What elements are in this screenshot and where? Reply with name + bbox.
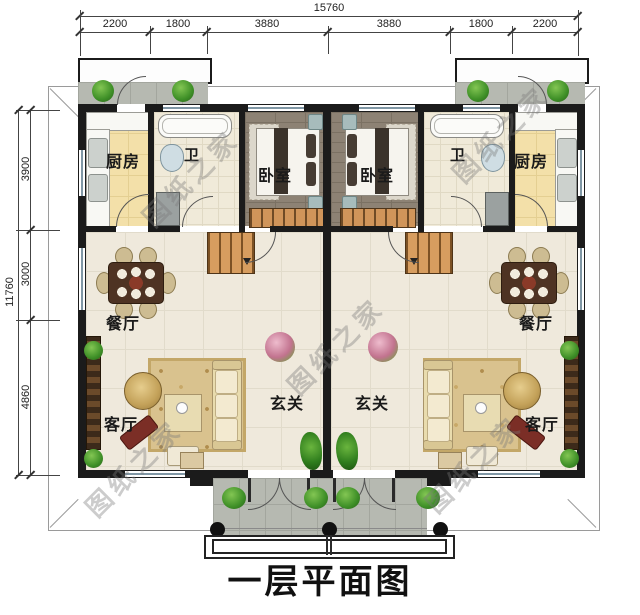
plant bbox=[304, 487, 328, 509]
plant bbox=[560, 449, 579, 468]
dim-ext bbox=[16, 230, 60, 231]
shoe-cabinet bbox=[180, 452, 204, 469]
flower-plant bbox=[368, 332, 398, 362]
steps-divider bbox=[326, 535, 328, 555]
nightstand bbox=[308, 114, 323, 130]
dim-seg: 2200 bbox=[90, 18, 140, 30]
plant bbox=[84, 449, 103, 468]
plant bbox=[300, 432, 322, 470]
room-label-living-left: 客厅 bbox=[104, 411, 138, 435]
sofa-cushion bbox=[215, 418, 238, 442]
dim-line bbox=[80, 16, 578, 17]
dim-seg: 2200 bbox=[520, 18, 570, 30]
plant bbox=[84, 341, 103, 360]
plant bbox=[336, 487, 360, 509]
dim-ext bbox=[80, 10, 81, 56]
nightstand bbox=[342, 114, 357, 130]
wall-segment bbox=[483, 226, 515, 232]
table-dish bbox=[475, 402, 487, 414]
kitchen-stove bbox=[557, 174, 577, 202]
wall-segment bbox=[270, 226, 323, 232]
plant bbox=[222, 487, 246, 509]
flower-plant bbox=[265, 332, 295, 362]
window bbox=[78, 248, 86, 310]
steps-divider bbox=[330, 535, 332, 555]
pillow bbox=[347, 162, 357, 186]
dim-seg: 3000 bbox=[20, 244, 32, 304]
wall-segment bbox=[78, 104, 86, 150]
wall-segment bbox=[540, 470, 585, 478]
plant bbox=[467, 80, 489, 102]
window bbox=[359, 104, 415, 112]
dim-seg: 3900 bbox=[20, 139, 32, 199]
wall-segment bbox=[78, 196, 86, 248]
dim-ext bbox=[16, 475, 60, 476]
wall-segment bbox=[185, 470, 248, 478]
plant bbox=[336, 432, 358, 470]
dim-ext bbox=[16, 320, 60, 321]
sofa-cushion bbox=[427, 394, 450, 418]
floor-plan: 厨房 厨房 卫 卫 卧室 卧室 餐厅 餐厅 客厅 客厅 玄关 玄关 图纸之家 图… bbox=[0, 0, 640, 615]
sofa-cushion bbox=[215, 370, 238, 394]
dining-table bbox=[501, 262, 557, 304]
room-label-foyer-right: 玄关 bbox=[355, 390, 389, 414]
dim-line bbox=[18, 110, 19, 476]
wall-segment bbox=[418, 104, 424, 232]
wall-segment bbox=[304, 104, 359, 112]
kitchen-sink bbox=[88, 138, 108, 168]
sofa-cushion bbox=[215, 394, 238, 418]
plant bbox=[92, 80, 114, 102]
shower bbox=[485, 192, 509, 226]
window bbox=[577, 248, 585, 310]
wardrobe bbox=[340, 208, 416, 228]
wall-segment bbox=[78, 226, 116, 232]
page-title: 一层平面图 bbox=[160, 560, 480, 604]
sofa-armrest bbox=[423, 360, 453, 370]
sofa-armrest bbox=[212, 360, 242, 370]
wall-segment bbox=[577, 104, 585, 150]
window bbox=[78, 150, 86, 196]
wardrobe bbox=[249, 208, 325, 228]
room-label-kitchen-right: 厨房 bbox=[514, 148, 548, 172]
dining-table bbox=[108, 262, 164, 304]
room-label-bedroom-right: 卧室 bbox=[360, 162, 394, 186]
dim-seg: 3880 bbox=[364, 18, 414, 30]
plant bbox=[560, 341, 579, 360]
dim-left-total: 11760 bbox=[4, 262, 16, 322]
window bbox=[163, 104, 200, 112]
window bbox=[577, 150, 585, 196]
plant bbox=[172, 80, 194, 102]
dim-seg: 4860 bbox=[20, 367, 32, 427]
window bbox=[463, 104, 500, 112]
dim-ext bbox=[16, 110, 60, 111]
sofa-cushion bbox=[427, 418, 450, 442]
wall-segment bbox=[190, 478, 213, 486]
room-label-bedroom-left: 卧室 bbox=[258, 162, 292, 186]
dim-seg: 1800 bbox=[153, 18, 203, 30]
porch-beam-line bbox=[213, 528, 427, 529]
wall-segment bbox=[547, 226, 585, 232]
dim-line bbox=[80, 32, 578, 33]
party-wall bbox=[323, 104, 331, 478]
dim-seg: 3880 bbox=[242, 18, 292, 30]
room-label-dining-right: 餐厅 bbox=[519, 310, 553, 334]
wall-segment bbox=[331, 226, 393, 232]
kitchen-stove bbox=[88, 174, 108, 202]
pillow bbox=[306, 162, 316, 186]
pillow bbox=[347, 134, 357, 158]
room-label-kitchen-left: 厨房 bbox=[106, 148, 140, 172]
round-table bbox=[124, 372, 162, 410]
wall-segment bbox=[577, 196, 585, 248]
dim-top-total: 15760 bbox=[299, 2, 359, 14]
room-label-dining-left: 餐厅 bbox=[106, 310, 140, 334]
kitchen-sink bbox=[557, 138, 577, 168]
dim-seg: 1800 bbox=[456, 18, 506, 30]
dim-ext bbox=[578, 10, 579, 56]
window bbox=[248, 104, 304, 112]
pillow bbox=[306, 134, 316, 158]
sofa-cushion bbox=[427, 370, 450, 394]
